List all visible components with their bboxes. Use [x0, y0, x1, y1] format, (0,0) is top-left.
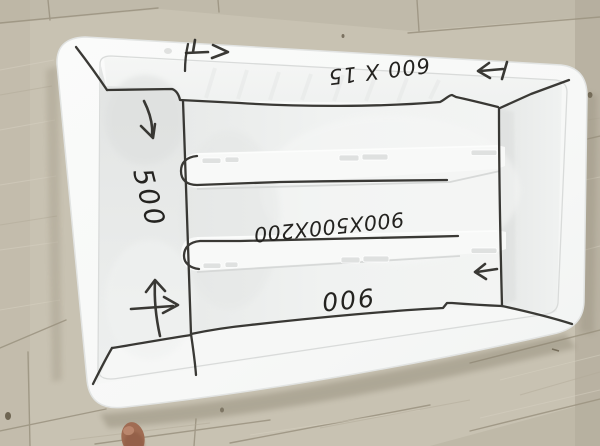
mold-photo-canvas: 600 X 15 500 900X500X200 900 — [0, 0, 600, 446]
annotation-900: 900 — [319, 282, 375, 316]
rim-smudge — [164, 48, 172, 54]
photo-stage: 600 X 15 500 900X500X200 900 — [0, 0, 600, 446]
